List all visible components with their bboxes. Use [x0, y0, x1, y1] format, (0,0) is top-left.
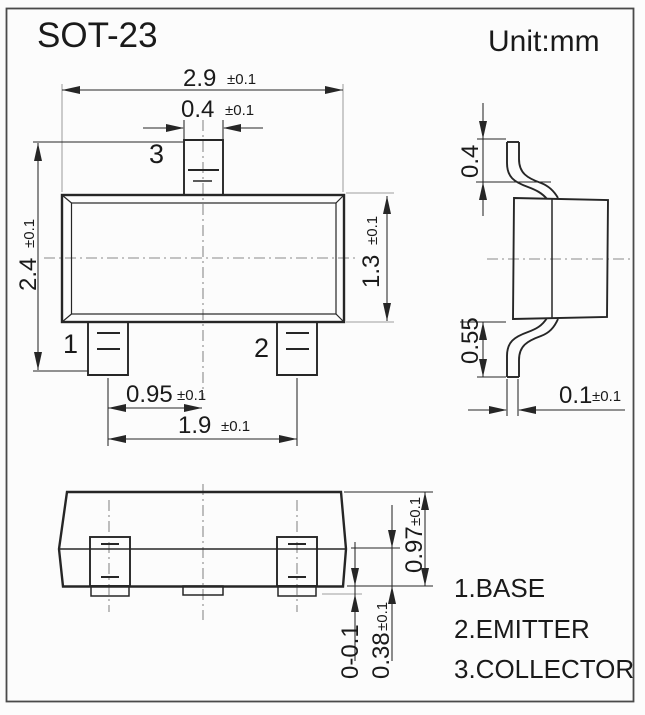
pin1-label: 1 [63, 329, 78, 359]
dim-overall-height: 2.4 ±0.1 [15, 142, 183, 371]
dim-tolerance: ±0.1 [227, 71, 256, 88]
legend-collector: 3.COLLECTOR [454, 654, 634, 684]
dim-tolerance: ±0.1 [177, 387, 206, 404]
legend-emitter: 2.EMITTER [454, 614, 590, 644]
pin3-label: 3 [149, 139, 164, 169]
front-pin-3: 3 [149, 139, 223, 195]
arrowhead [479, 121, 487, 139]
front-pin-1: 1 [63, 322, 128, 375]
front-view: 3 1 2 2.9 ±0.1 [15, 65, 394, 446]
lead-inner-curve [519, 142, 558, 198]
rotated-dim-text: 0.4 [457, 145, 484, 178]
side-upper-lead [507, 142, 558, 199]
rotated-dim-text: 0.97 ±0.1 [401, 497, 428, 573]
dim-value: 0-0.1 [337, 624, 364, 679]
rotated-dim-text: 1.3 ±0.1 [358, 216, 385, 288]
dim-tolerance: ±0.1 [225, 102, 254, 119]
arrowhead [351, 594, 359, 612]
dim-value: 0.38 [368, 632, 395, 679]
dim-tolerance: ±0.1 [21, 219, 38, 248]
rotated-dim-text: 0.55 [457, 317, 484, 364]
dim-tolerance: ±0.1 [407, 497, 424, 526]
bottom-view: 0.97 ±0.1 0.38 ±0.1 0-0.1 [59, 484, 433, 679]
unit-label: Unit:mm [488, 25, 600, 58]
sot23-package-drawing: SOT-23 Unit:mm 3 1 [0, 0, 645, 715]
arrowhead [388, 530, 396, 548]
arrowhead [479, 182, 487, 200]
front-pin-2: 2 [254, 322, 317, 375]
pin-legend: 1.BASE 2.EMITTER 3.COLLECTOR [454, 573, 634, 684]
arrowhead [184, 404, 202, 412]
side-lower-lead [507, 318, 558, 377]
rotated-dim-text: 0-0.1 [337, 624, 364, 679]
dim-value: 1.9 [178, 412, 211, 439]
dim-value: 0.4 [181, 96, 214, 123]
dim-lead-width: 0.4 ±0.1 [143, 96, 263, 139]
arrowhead [62, 86, 80, 94]
datasheet-page: SOT-23 Unit:mm 3 1 [0, 0, 645, 715]
arrowhead [279, 435, 297, 443]
arrowhead [108, 435, 126, 443]
rotated-dim-text: 0.38 ±0.1 [368, 602, 395, 679]
arrowhead [34, 352, 42, 370]
arrowhead [388, 586, 396, 604]
lead-outer-curve [507, 318, 547, 377]
arrowhead [489, 406, 507, 414]
dim-tolerance: ±0.1 [221, 418, 250, 435]
arrowhead [108, 404, 126, 412]
pin2-label: 2 [254, 333, 269, 363]
arrowhead [383, 196, 391, 214]
dim-value: 0.1 [559, 382, 592, 409]
dim-tolerance: ±0.1 [592, 388, 621, 405]
chamfer-line [62, 314, 72, 322]
arrowhead [223, 124, 241, 132]
side-view: 0.4 0.55 0.1 ±0.1 [457, 103, 632, 416]
legend-base: 1.BASE [454, 573, 545, 603]
arrowhead [166, 124, 184, 132]
arrowhead [383, 303, 391, 321]
dim-value: 0.55 [457, 317, 484, 364]
dim-value: 2.4 [15, 258, 42, 291]
arrowhead [518, 406, 536, 414]
dim-lead-thickness: 0.1 ±0.1 [468, 379, 625, 416]
dim-tolerance: ±0.1 [364, 216, 381, 245]
page-title: SOT-23 [37, 16, 158, 55]
chamfer-line [336, 314, 344, 322]
arrowhead [325, 86, 343, 94]
dim-value: 0.4 [457, 145, 484, 178]
dim-value: 0.97 [401, 526, 428, 573]
dim-value: 2.9 [183, 65, 216, 92]
arrowhead [34, 143, 42, 161]
dim-tolerance: ±0.1 [374, 602, 391, 631]
dim-lower-lead-height: 0.55 [457, 317, 506, 377]
dim-value: 0.95 [126, 381, 173, 408]
dim-standoff: 0-0.1 [322, 542, 364, 679]
lead-outer-curve [507, 142, 547, 199]
dim-value: 1.3 [358, 255, 385, 288]
arrowhead [351, 568, 359, 586]
